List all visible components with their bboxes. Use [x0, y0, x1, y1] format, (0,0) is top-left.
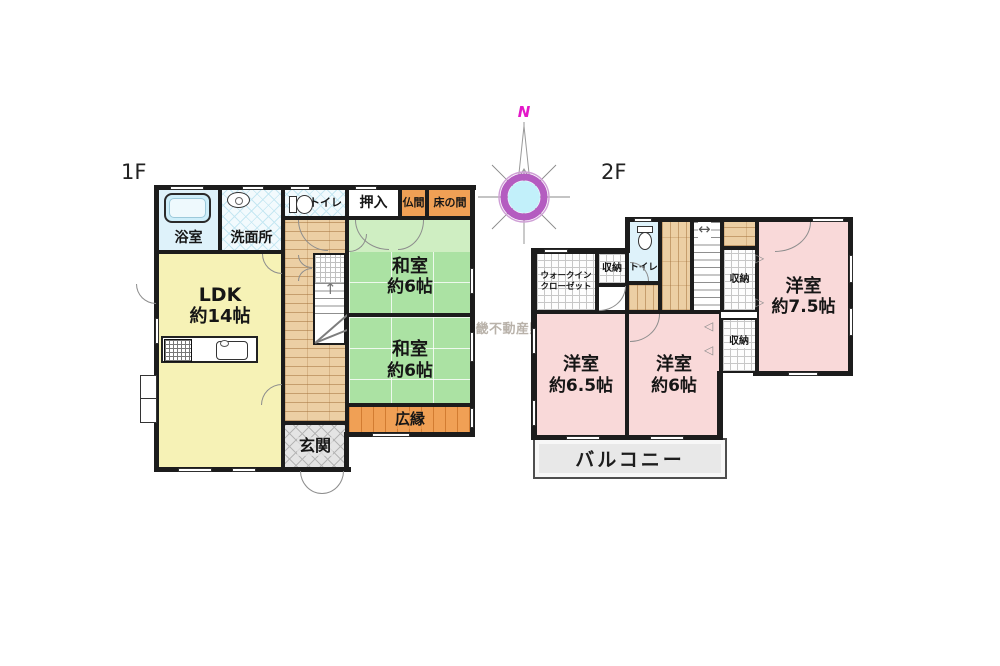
window-marker [178, 468, 212, 472]
wall [717, 371, 723, 440]
stairs-up-arrow: ↑ [324, 281, 337, 299]
yoshitsu-6-label: 洋室 約6帖 [651, 354, 697, 395]
entrance-door-arc [300, 471, 344, 494]
kitchen-counter-icon [161, 336, 258, 363]
window-marker [232, 468, 256, 472]
window-marker [170, 186, 204, 190]
window-marker [470, 408, 474, 428]
stove-icon [164, 339, 192, 362]
room-walkin-closet-2f: ウォークイン クローゼット [535, 252, 597, 312]
washbasin-icon [227, 192, 250, 208]
ldk-label: LDK 約14帖 [189, 284, 250, 328]
bathtub-icon [164, 193, 211, 223]
window-marker [812, 218, 844, 222]
window-marker [532, 400, 536, 426]
room-oshiire-1f: 押入 [347, 188, 400, 218]
wall [625, 217, 630, 252]
hallway-2f [660, 220, 692, 312]
yoshitsu-75-label: 洋室 約7.5帖 [771, 276, 835, 317]
room-butsuma-1f: 仏間 [400, 188, 427, 218]
room-storage-upper-right-2f: 収納 [722, 248, 757, 312]
wall [344, 432, 349, 472]
stairs-2f: ↔ [692, 220, 722, 312]
room-toilet-1f: トイレ [283, 188, 347, 218]
wall [531, 435, 723, 440]
window-marker [290, 186, 310, 190]
folding-door-icon: ◁ [704, 344, 713, 356]
room-storage-middle-2f: 収納 [721, 318, 757, 373]
floor2-label: 2F [601, 160, 626, 184]
window-marker [634, 218, 652, 222]
folding-door-icon: ▷ [755, 252, 764, 264]
window-marker [470, 268, 474, 294]
room-bathroom-1f: 浴室 [157, 188, 220, 252]
landing-wood-2f [722, 220, 757, 248]
room-yoshitsu-65-2f: 洋室 約6.5帖 [535, 312, 627, 438]
window-marker [566, 436, 600, 440]
window-marker [470, 332, 474, 362]
wall [470, 185, 475, 437]
washitsu-lower-label: 和室 約6帖 [387, 339, 433, 380]
washitsu-upper-label: 和室 約6帖 [387, 256, 433, 297]
room-storage-upper-left-2f: 収納 [597, 252, 627, 285]
kitchen-sink-icon [216, 341, 248, 360]
compass-rose-icon: N [472, 100, 576, 248]
stairs-direction-arrow: ↔ [698, 221, 711, 239]
window-marker [849, 308, 853, 336]
window-marker [355, 186, 377, 190]
room-washitsu-lower-1f: 和室 約6帖 [347, 315, 473, 405]
wall [848, 217, 853, 376]
window-marker [372, 433, 410, 437]
window-marker [544, 249, 568, 253]
folding-door-icon: ▷ [755, 296, 764, 308]
window-marker [242, 186, 264, 190]
window-marker [849, 255, 853, 283]
room-hiroen-1f: 広縁 [347, 405, 473, 435]
hallway-2f-lower [627, 283, 660, 312]
folding-door-icon: ◁ [704, 320, 713, 332]
compass-north-label: N [518, 103, 531, 121]
door-arc-ldk-exterior [136, 284, 156, 304]
wall [345, 432, 475, 437]
window-marker [532, 328, 536, 354]
room-yoshitsu-75-2f: 洋室 約7.5帖 [757, 220, 850, 373]
bay-window [140, 375, 157, 423]
yoshitsu-65-label: 洋室 約6.5帖 [549, 354, 613, 395]
floor-plan: 1F 2F N N 株式会社 近畿不動産販売 浴室 洗面所 トイレ [0, 0, 1000, 666]
floor1-label: 1F [121, 160, 146, 184]
window-marker [155, 318, 159, 344]
room-washroom-1f: 洗面所 [220, 188, 283, 252]
room-genkan-1f: 玄関 [283, 423, 347, 470]
window-marker [650, 436, 684, 440]
balcony-2f: バルコニー [533, 438, 727, 479]
window-marker [788, 372, 818, 376]
room-ldk-1f: LDK 約14帖 [157, 252, 283, 470]
room-tokonoma-1f: 床の間 [427, 188, 473, 218]
